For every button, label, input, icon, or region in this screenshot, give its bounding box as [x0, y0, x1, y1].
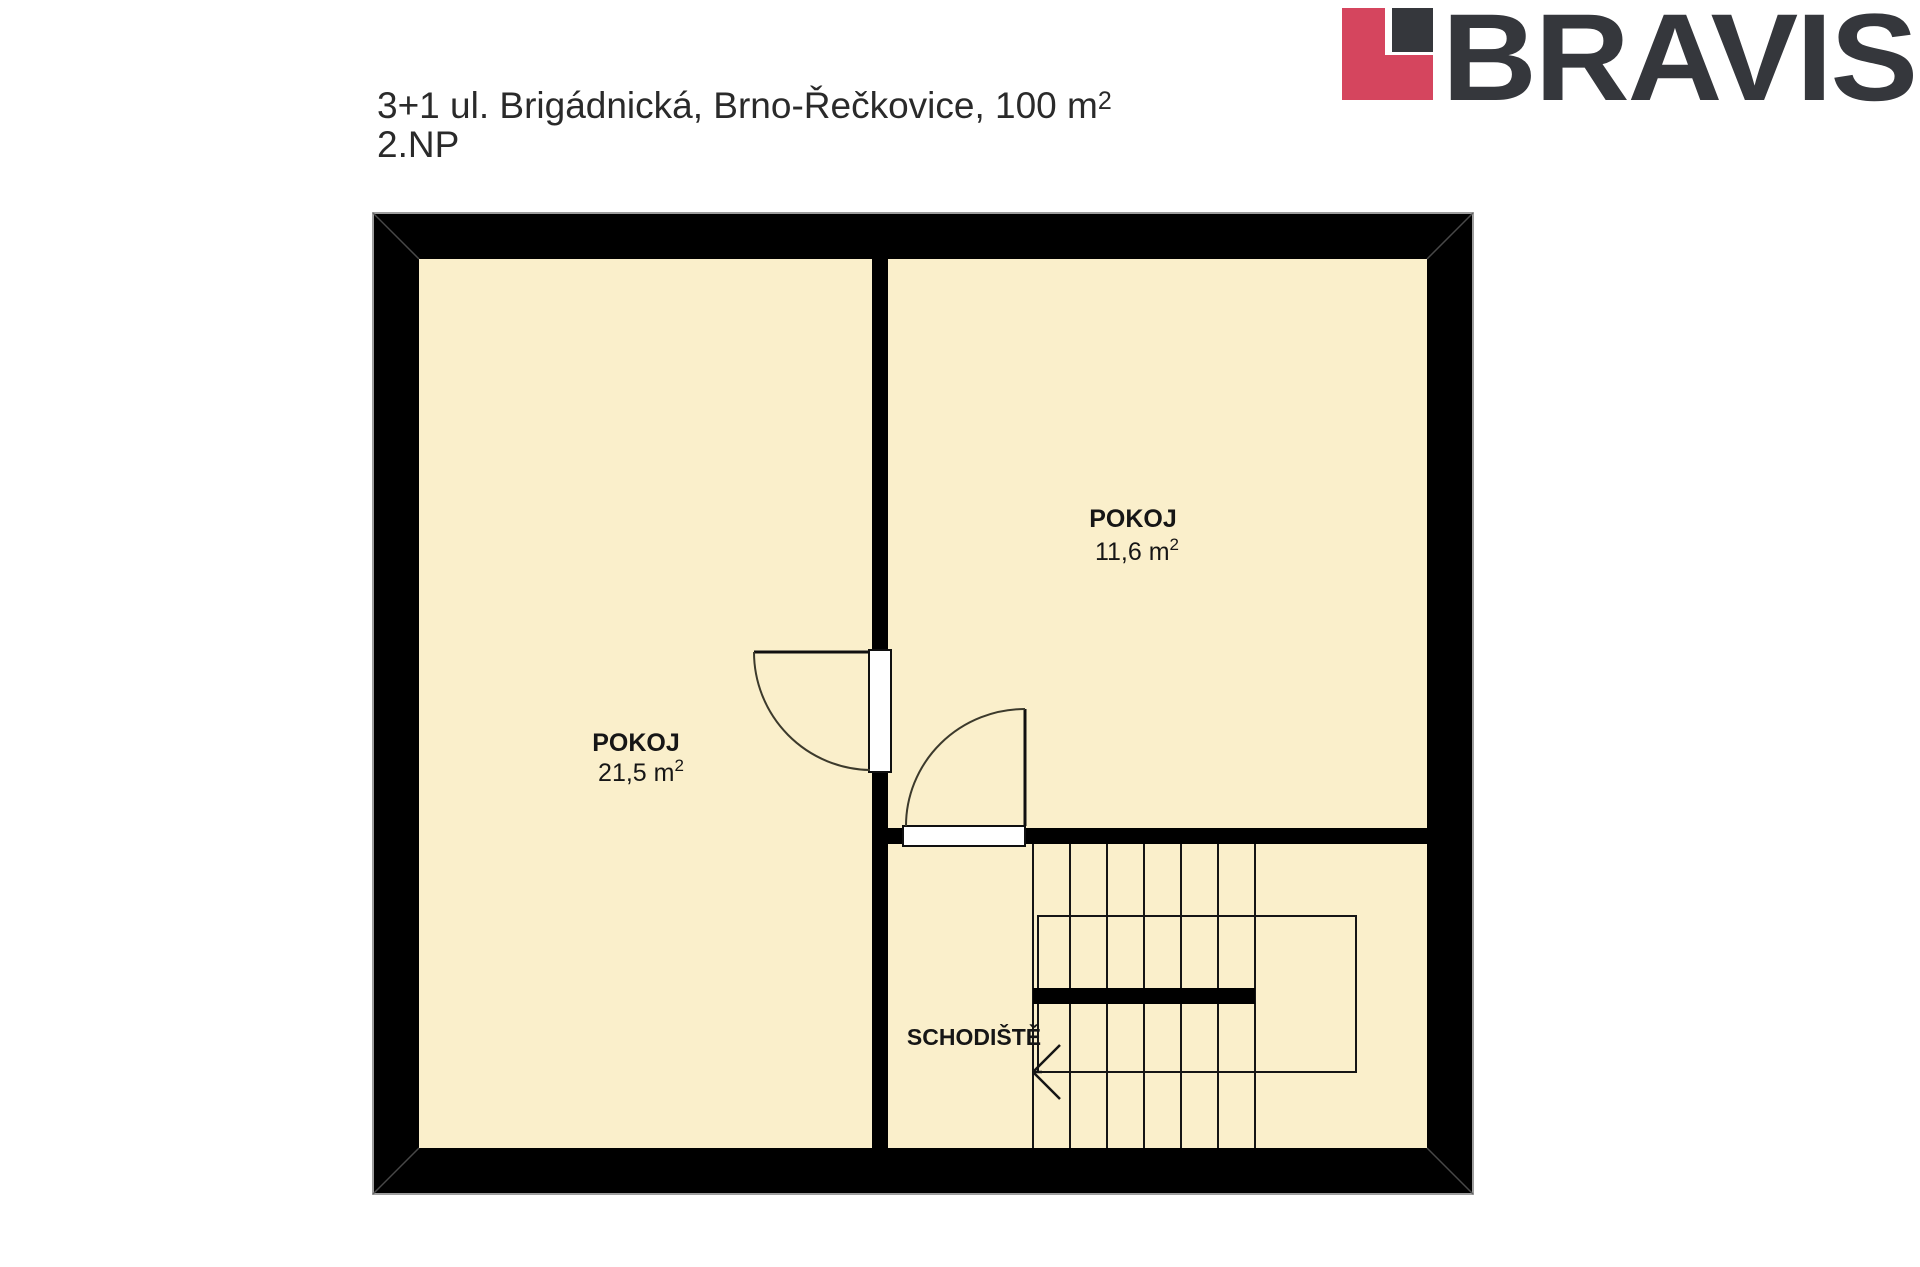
door-right-opening	[903, 826, 1025, 846]
staircase-label: SCHODIŠTĚ	[907, 1023, 1041, 1050]
room-right-area-sup: 2	[1170, 535, 1179, 554]
floor-area	[419, 259, 1427, 1148]
room-right-area-value: 11,6 m	[1095, 538, 1170, 566]
door-left-opening	[869, 650, 891, 772]
room-left-name: POKOJ	[592, 729, 680, 757]
room-right-name: POKOJ	[1089, 505, 1177, 533]
room-right-area: 11,6 m2	[1095, 535, 1179, 566]
room-left-area-value: 21,5 m	[598, 759, 674, 787]
room-left-area-sup: 2	[674, 756, 683, 775]
room-left-area: 21,5 m2	[598, 756, 684, 787]
stair-flight-divider	[1033, 988, 1255, 1004]
floor-plan: POKOJ 21,5 m2 POKOJ 11,6 m2 SCHODIŠTĚ	[0, 0, 1920, 1267]
